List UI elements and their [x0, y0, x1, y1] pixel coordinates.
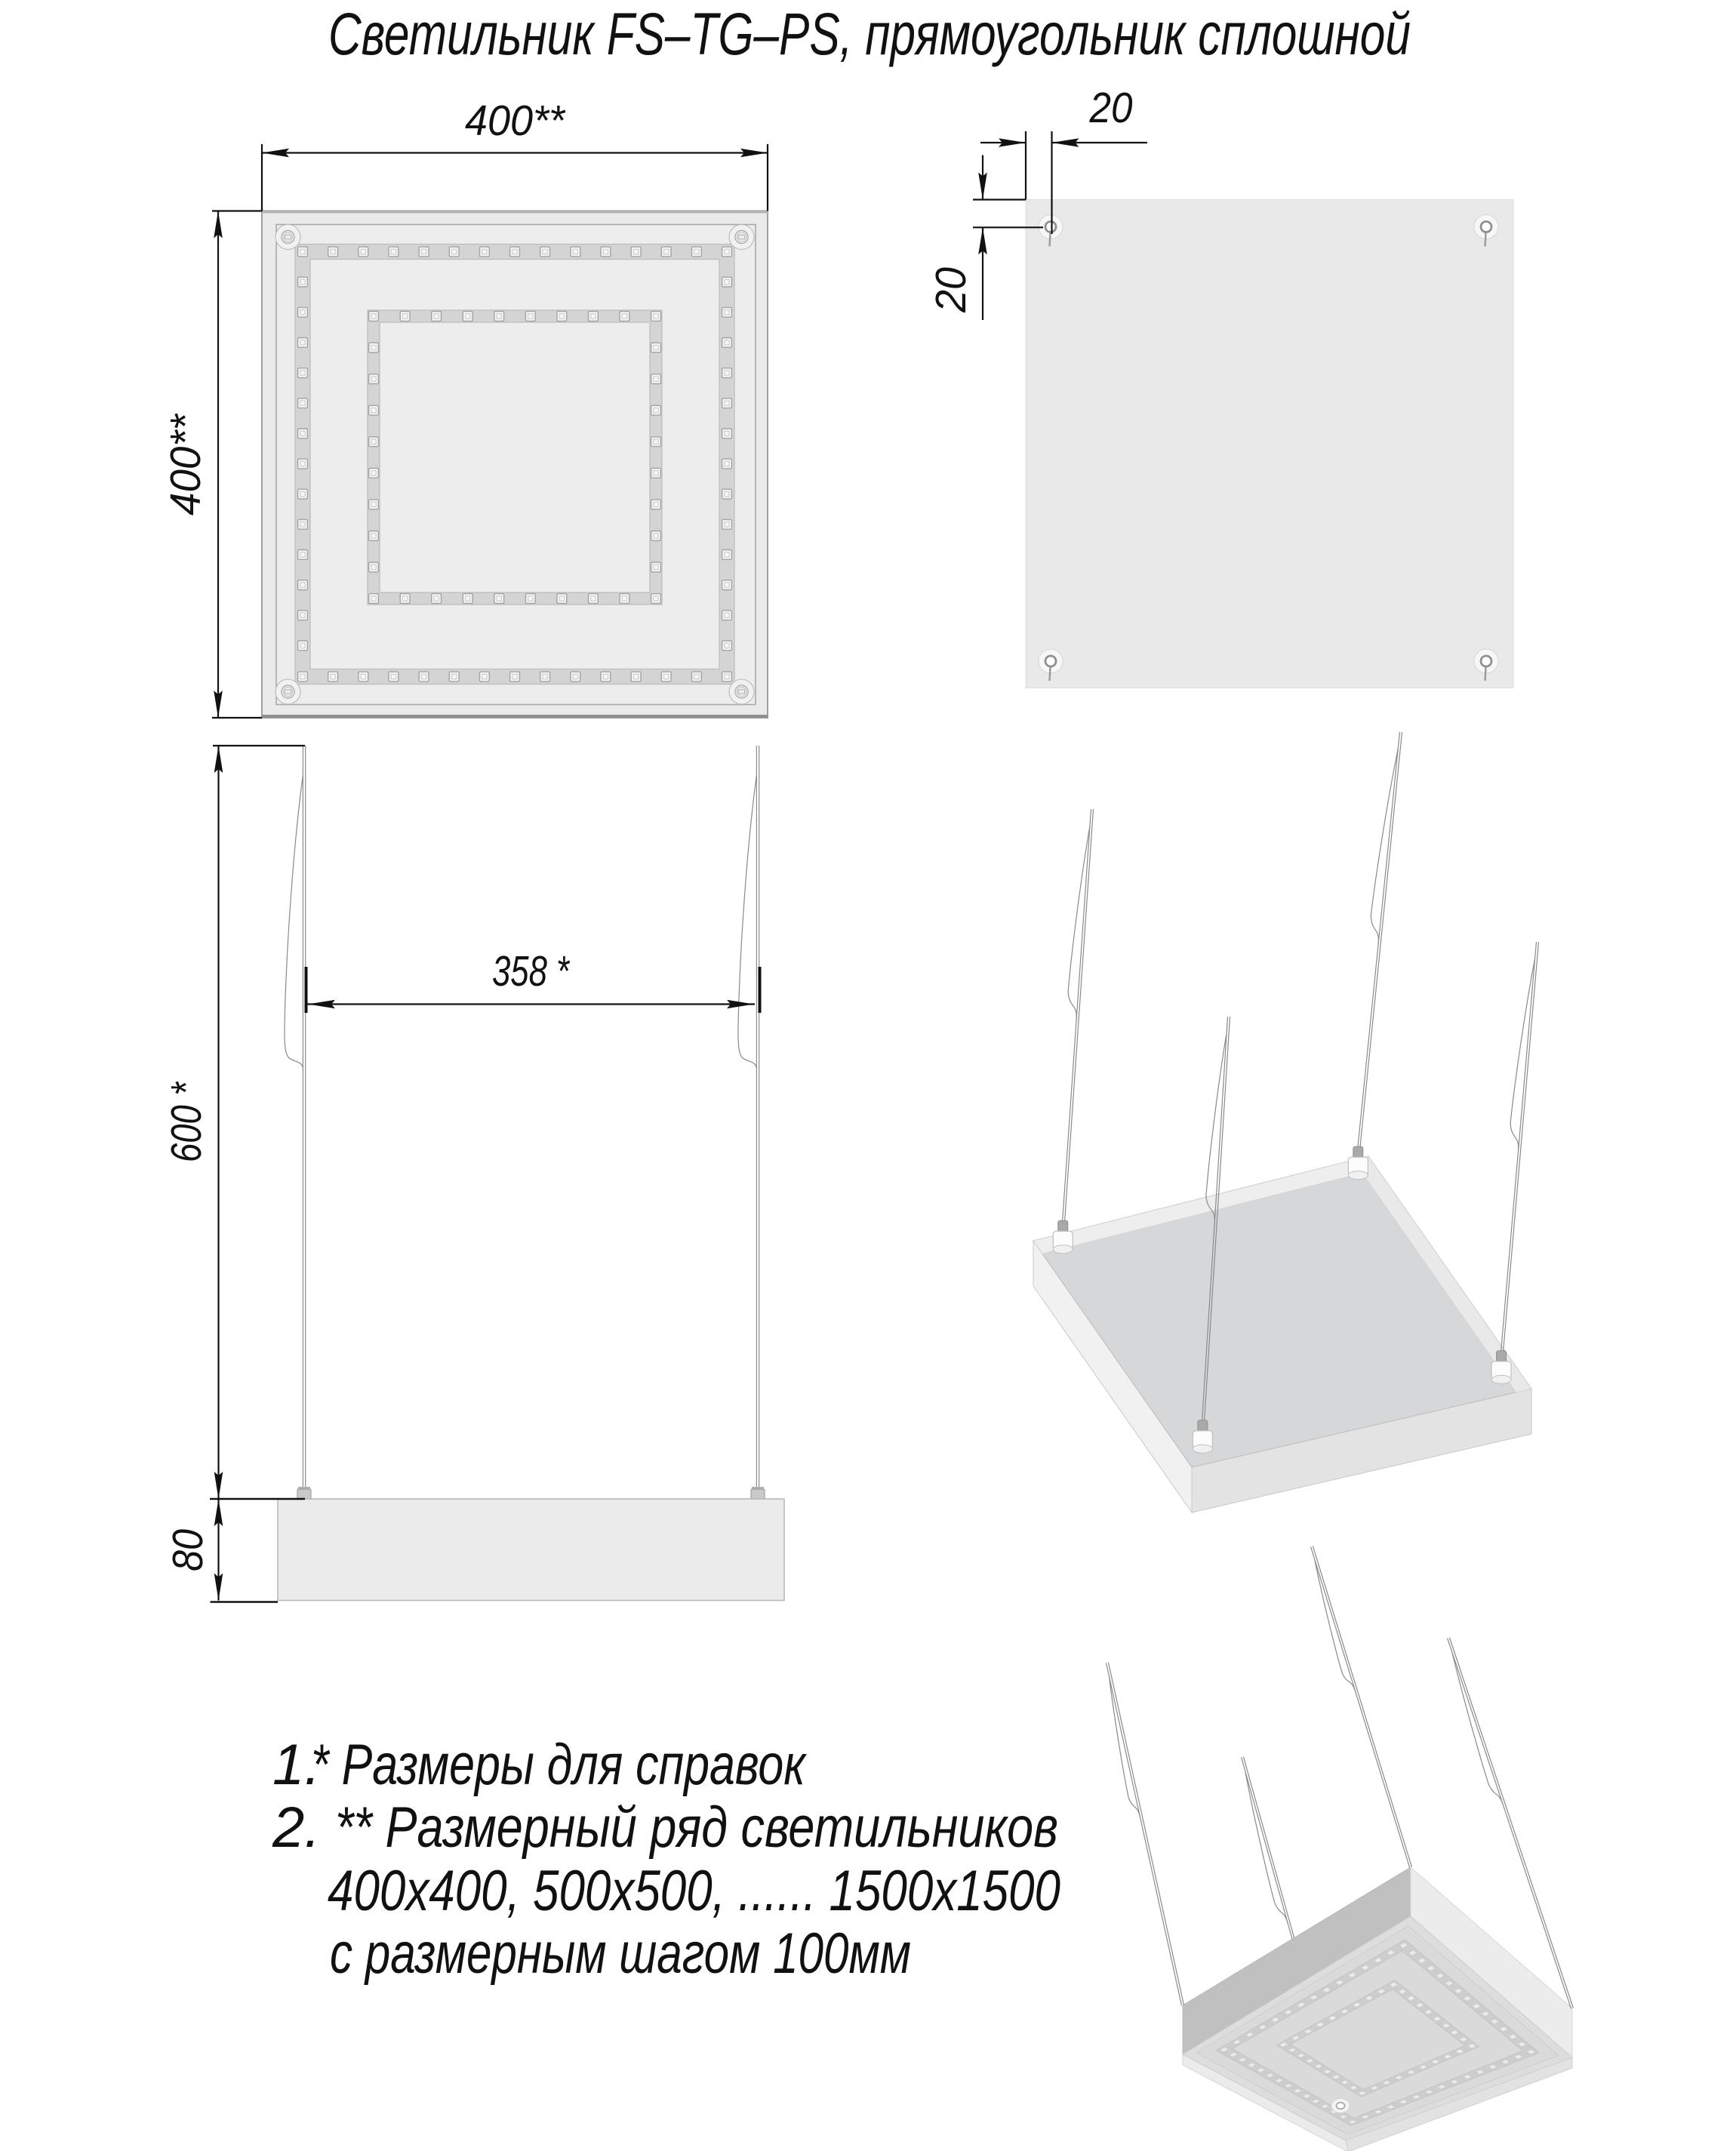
svg-text:** Размерный ряд светильников: ** Размерный ряд светильников — [335, 1796, 1058, 1860]
svg-text:400**: 400** — [465, 97, 566, 145]
svg-text:20: 20 — [927, 267, 975, 313]
svg-text:2.: 2. — [272, 1796, 320, 1860]
svg-text:* Размеры для справок: * Размеры для справок — [311, 1733, 807, 1797]
svg-text:600 *: 600 * — [162, 1082, 211, 1162]
svg-text:400х400, 500х500, ...... 1500: 400х400, 500х500, ...... 1500х1500 — [328, 1859, 1060, 1923]
svg-text:Светильник FS–TG–PS, прямоугол: Светильник FS–TG–PS, прямоугольник сплош… — [328, 0, 1411, 67]
svg-text:358 *: 358 * — [492, 947, 570, 995]
svg-text:400**: 400** — [162, 413, 210, 515]
svg-text:с размерным шагом 100мм: с размерным шагом 100мм — [330, 1922, 911, 1986]
svg-text:80: 80 — [164, 1529, 212, 1571]
svg-text:20: 20 — [1089, 84, 1133, 132]
